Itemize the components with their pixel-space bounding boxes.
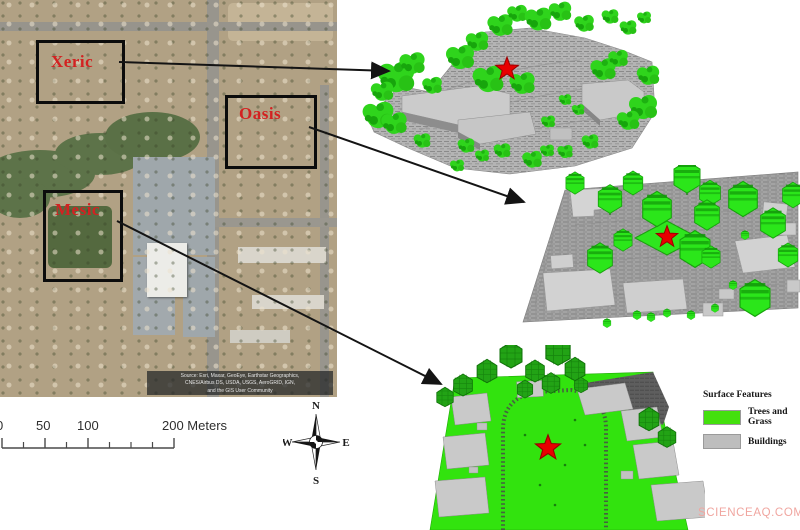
trees-grass-label: Trees and Grass (748, 407, 800, 427)
compass-star (292, 414, 340, 470)
trees-grass-swatch (703, 410, 741, 425)
legend-title: Surface Features (703, 390, 800, 400)
region-label-xeric: Xeric (51, 52, 122, 72)
figure-canvas: Xeric Oasis Mesic Source: Esri, Maxar, G… (0, 0, 800, 530)
scale-label-0: 0 (0, 418, 3, 433)
compass-south-label: S (313, 475, 319, 487)
legend: Surface Features Trees and Grass Buildin… (703, 390, 800, 449)
map-attribution: Source: Esri, Maxar, GeoEye, Earthstar G… (147, 371, 333, 395)
scale-label-50: 50 (36, 418, 50, 433)
legend-row-trees-grass: Trees and Grass (703, 407, 800, 427)
scale-label-200-meters: 200 Meters (162, 418, 227, 433)
scale-bar (0, 436, 200, 452)
watermark: SCIENCEAQ.COM (698, 507, 800, 519)
legend-row-buildings: Buildings (703, 434, 800, 449)
satellite-map: Xeric Oasis Mesic Source: Esri, Maxar, G… (0, 0, 337, 397)
buildings-label: Buildings (748, 437, 787, 447)
compass-rose: N S W E (283, 396, 353, 488)
region-label-mesic: Mesic (55, 200, 120, 220)
mesic-3d-model (425, 345, 705, 530)
scale-label-100: 100 (77, 418, 99, 433)
region-label-oasis: Oasis (239, 104, 314, 124)
xeric-3d-model (360, 0, 660, 185)
compass-west-label: W (283, 437, 293, 449)
region-box-oasis: Oasis (225, 95, 317, 169)
region-box-xeric: Xeric (36, 40, 125, 104)
attribution-line: and the GIS User Community (147, 388, 333, 395)
compass-north-label: N (312, 400, 320, 412)
attribution-line: CNES/Airbus DS, USDA, USGS, AeroGRID, IG… (147, 380, 333, 387)
attribution-line: Source: Esri, Maxar, GeoEye, Earthstar G… (147, 373, 333, 380)
compass-east-label: E (342, 437, 349, 449)
buildings-swatch (703, 434, 741, 449)
region-box-mesic: Mesic (43, 190, 123, 282)
oasis-3d-model (515, 165, 800, 350)
